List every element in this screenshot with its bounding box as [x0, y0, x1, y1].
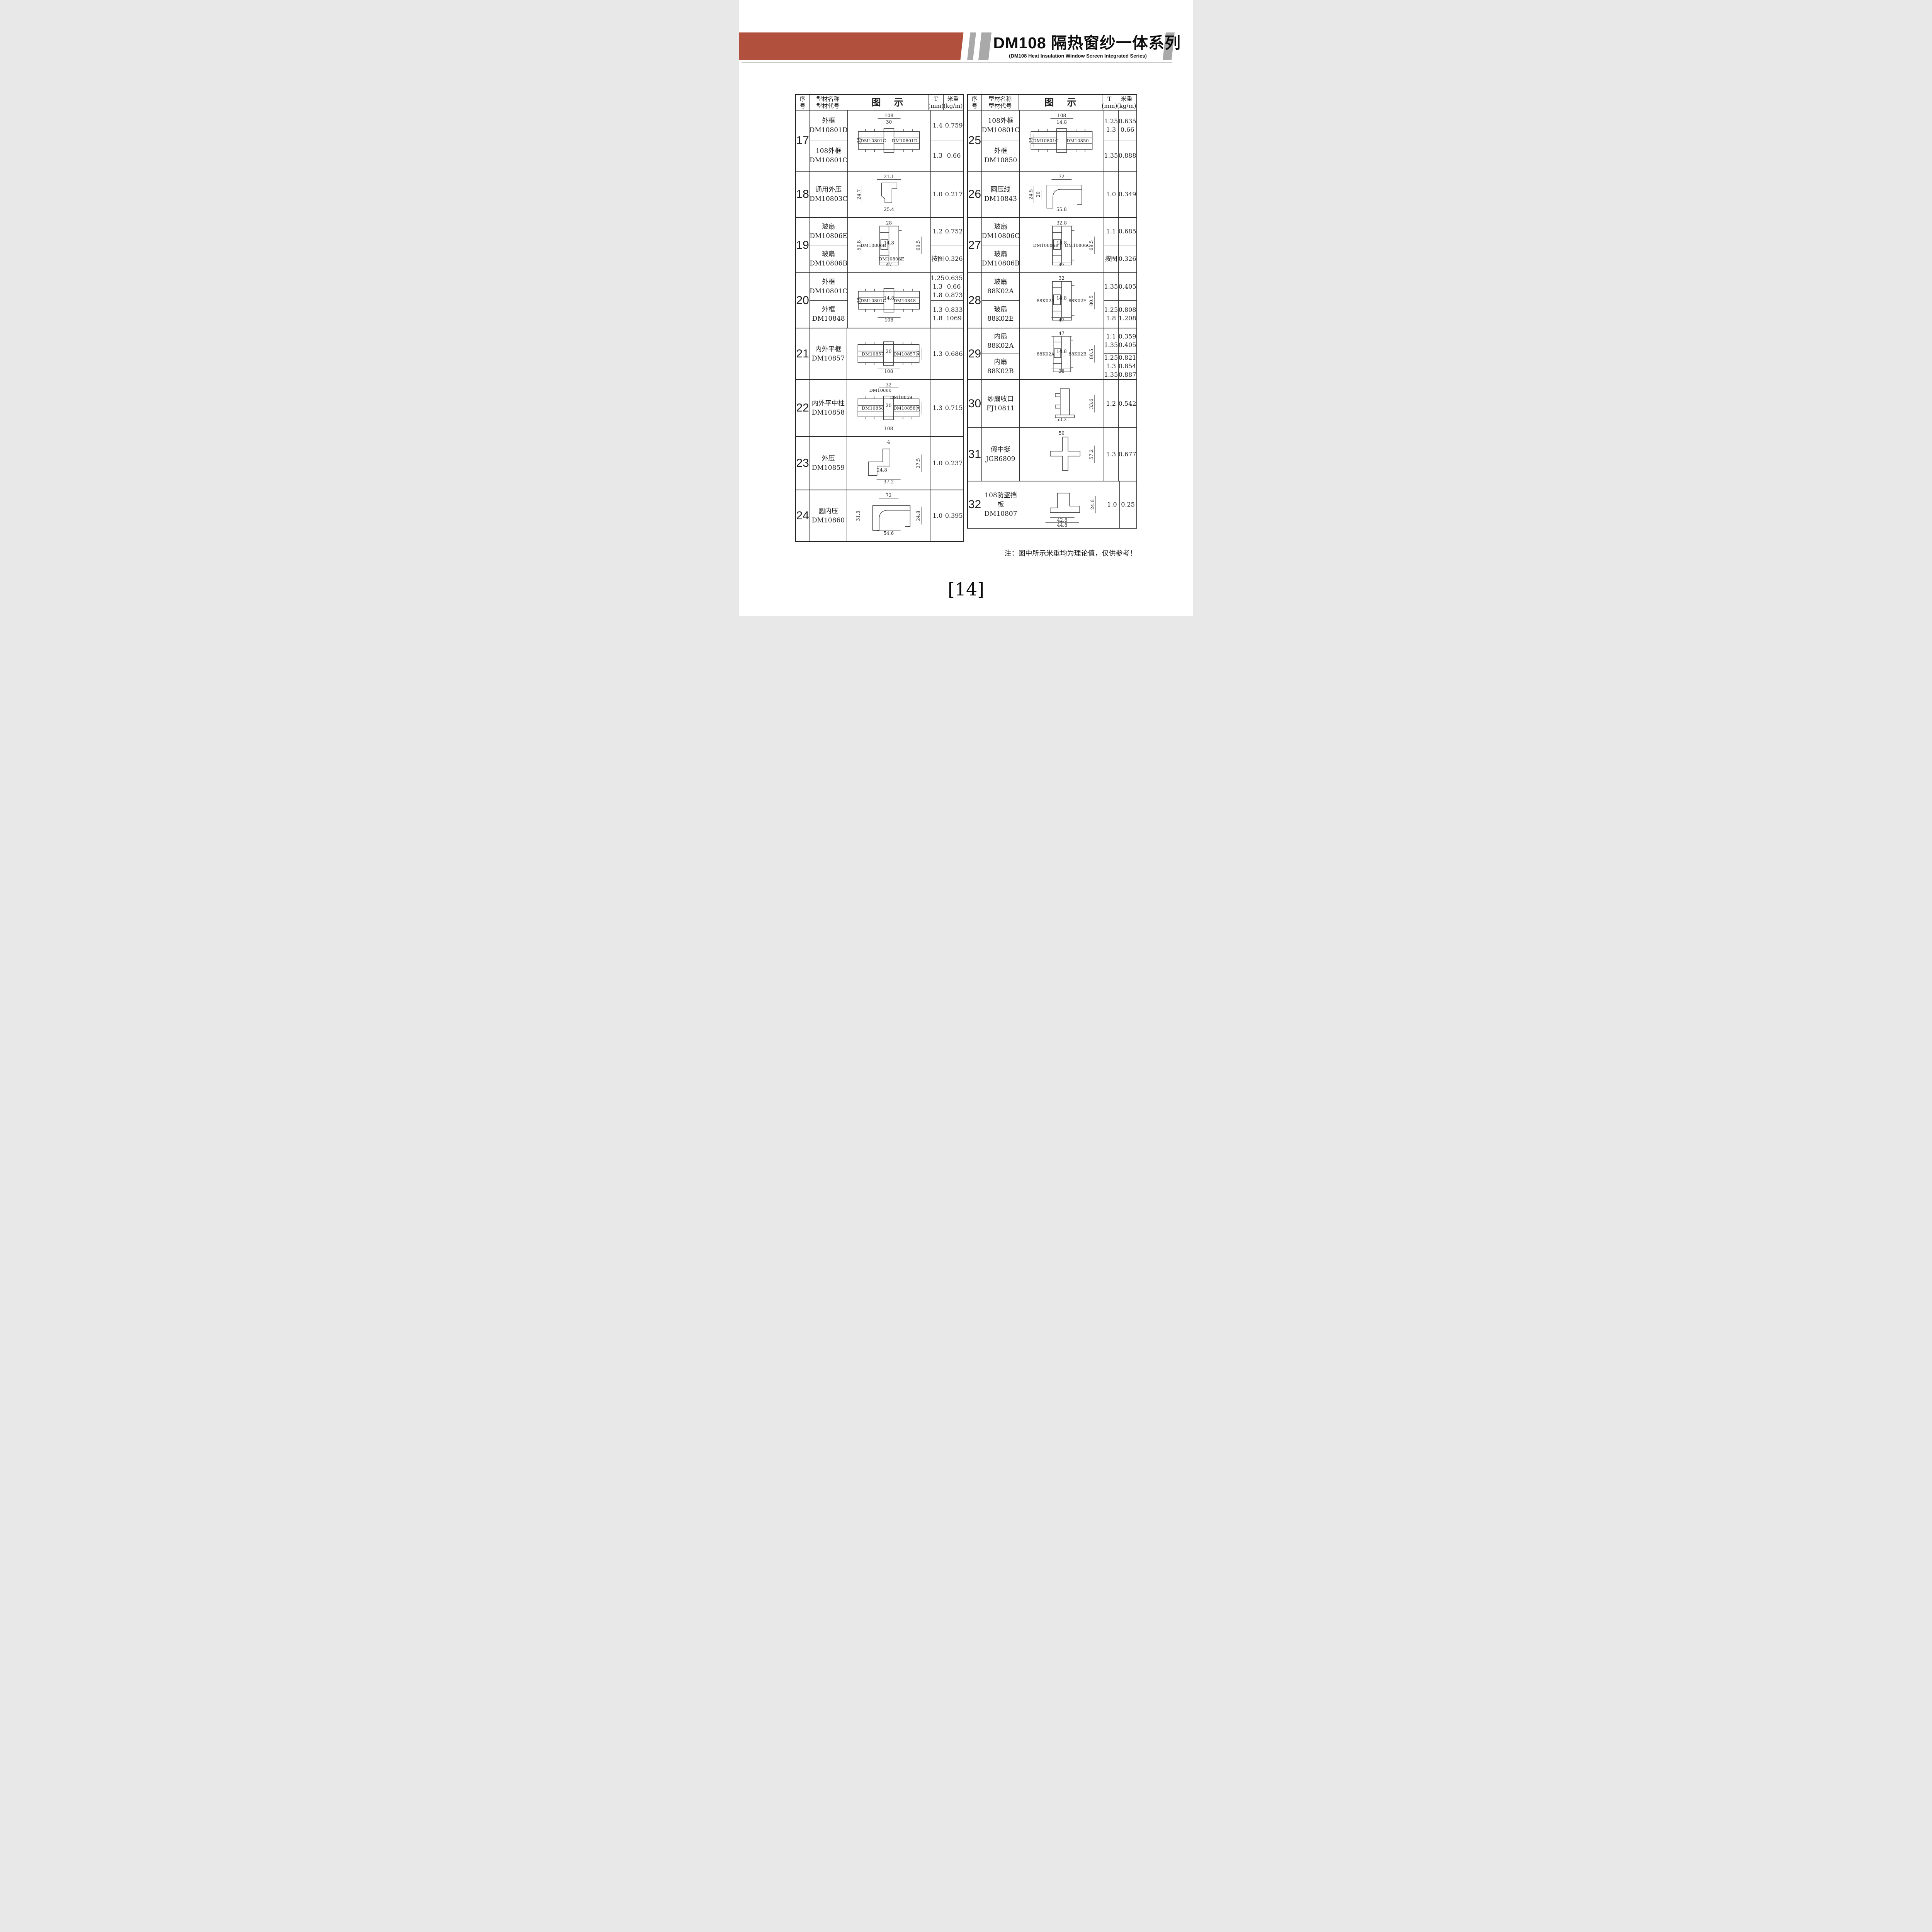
row-number: 21 [796, 347, 809, 361]
profile-name-cell-section: 外压DM10859 [810, 437, 847, 490]
profile-code-label: DM10860 [869, 388, 891, 393]
weight-cell-section: 0.326 [945, 245, 963, 272]
profile-name-cell-stack: 通用外压DM10803C [810, 172, 847, 217]
table-row: 32108防盗挡板DM1080724.642.844.81.00.25 [968, 481, 1136, 528]
dimension-label: 72 [1052, 174, 1071, 180]
row-number-cell: 23 [796, 437, 810, 490]
weight-cell-stack: 0.395 [945, 490, 963, 541]
table-header-row: 序 号 型材名称 型材代号 图示 T (mm) 米重 (kg/m) [968, 95, 1136, 111]
dimension-label: 14.8 [1056, 296, 1067, 301]
weight-value: 0.635 0.66 [1119, 117, 1136, 134]
profile-name-cell-section: 通用外压DM10803C [810, 172, 847, 217]
table-row: 27玻扇DM10806C玻扇DM10806B32.814.869.547DM10… [968, 218, 1136, 273]
thickness-cell: 1.0 [1104, 172, 1119, 217]
thickness-value: 1.0 [1107, 500, 1117, 509]
dimension-label: 24.5 [1029, 186, 1034, 203]
profile-code-label: DM10801D [892, 138, 918, 143]
profile-name-cell-section: 外框DM10850 [982, 141, 1019, 171]
dimension-label: 72 [879, 493, 898, 498]
dimension-label: 69.5 [916, 236, 922, 254]
profile-name-cell-stack: 圆内压DM10860 [810, 490, 847, 541]
dimension-label: 27.5 [916, 455, 921, 472]
row-number: 30 [968, 397, 981, 410]
weight-cell: 0.237 [945, 437, 963, 490]
table-row: 25108外框DM10801C外框DM1085010814.838DM10801… [968, 111, 1136, 172]
profile-name: 外压 [822, 454, 835, 463]
profile-code-label: 88K02E [1068, 298, 1086, 303]
profile-name-cell: 玻扇DM10806E玻扇DM10806B [810, 218, 848, 272]
row-number-cell: 18 [796, 172, 810, 217]
weight-cell: 0.677 [1119, 428, 1136, 481]
dimension-label: 32.8 [1049, 221, 1074, 226]
thickness-value: 1.2 [933, 227, 942, 236]
profile-name-cell-section: 玻扇DM10806B [810, 245, 847, 272]
row-number: 27 [968, 239, 981, 252]
weight-value: 0.25 [1121, 500, 1135, 509]
weight-cell: 0.542 [1119, 380, 1136, 427]
profile-diagram-cell: 3214.880.54788K02A88K02E [1020, 273, 1104, 328]
weight-cell-section: 0.635 0.66 [1119, 111, 1136, 141]
row-number: 17 [796, 134, 809, 147]
profile-name-cell-stack: 玻扇DM10806E玻扇DM10806B [810, 218, 847, 272]
thickness-cell-section: 1.0 [930, 490, 944, 541]
profile-code-label: DM10806C [1065, 243, 1090, 248]
thickness-cell-section: 1.25 1.3 [1104, 111, 1118, 141]
dimension-label: 108 [877, 426, 900, 431]
weight-cell-section: 0.635 0.66 0.873 [945, 273, 963, 300]
series-title: DM108 隔热窗纱一体系列 [993, 33, 1163, 53]
profile-diagram-cell: 322038108DM10860DM10859DM10858DM10858 [847, 380, 930, 436]
weight-value: 0.237 [945, 459, 963, 468]
profile-name: 108防盗挡板 [982, 491, 1020, 509]
profile-code: DM10859 [812, 463, 845, 473]
footer-note: 注：图中所示米重均为理论值，仅供参考！ [1005, 548, 1137, 558]
row-number-cell: 19 [796, 218, 810, 272]
thickness-cell: 1.0 [930, 490, 945, 541]
thickness-cell-section: 1.2 [1104, 380, 1118, 427]
dimension-label: 50 [1052, 431, 1071, 436]
profile-diagram-cell: 427.524.837.2 [847, 437, 930, 490]
row-number-cell: 27 [968, 218, 982, 272]
row-number-cell: 17 [796, 111, 810, 171]
column-header-diagram: 图示 [1019, 95, 1102, 110]
profile-code-label: DM10801C [861, 298, 886, 303]
weight-cell: 0.4050.808 1.208 [1119, 273, 1136, 328]
dimension-label: 47 [879, 262, 899, 267]
profile-name-cell: 外框DM10801C外框DM10848 [810, 273, 848, 328]
profile-name-cell-stack: 假中挺JGB6809 [982, 428, 1019, 481]
profile-name-cell: 玻扇88K02A玻扇88K02E [982, 273, 1019, 328]
thickness-cell-section: 1.0 [930, 437, 944, 490]
profile-code: DM10801C [982, 126, 1020, 135]
dimension-label: 55.8 [1049, 207, 1074, 212]
dimension-label: 32 [879, 383, 898, 388]
profile-code-label: DM10858 [862, 405, 884, 411]
profile-code-label: DM10859 [890, 395, 912, 400]
profile-name: 玻扇 [822, 222, 835, 231]
profile-code: 88K02E [987, 314, 1014, 323]
row-number-cell: 28 [968, 273, 982, 328]
weight-cell: 0.395 [945, 490, 963, 541]
thickness-value: 1.1 [1106, 227, 1116, 236]
weight-cell-stack: 0.542 [1119, 380, 1136, 427]
profile-code: DM10858 [812, 408, 845, 417]
dimension-label: 33.6 [1089, 395, 1095, 412]
profile-code-label: 88K02A [1037, 298, 1054, 303]
weight-value: 0.685 [1119, 227, 1136, 236]
thickness-cell-section: 1.3 [1104, 428, 1118, 481]
table-row: 20外框DM10801C外框DM108483814.8108DM10801CDM… [796, 273, 963, 328]
thickness-cell-section: 1.3 [931, 141, 945, 171]
weight-cell: 0.25 [1120, 481, 1136, 528]
profile-name-cell-stack: 108外框DM10801C外框DM10850 [982, 111, 1019, 171]
weight-cell-stack: 0.237 [945, 437, 963, 490]
profile-name-cell-section: 内扇88K02A [982, 328, 1019, 354]
dimension-label: 80.5 [1089, 292, 1095, 309]
row-number-cell: 32 [968, 481, 982, 528]
dimension-label: 20 [1036, 189, 1041, 199]
thickness-cell-stack: 1.2 [1104, 380, 1118, 427]
thickness-cell-stack: 1.25 1.3 1.81.3 1.8 [931, 273, 945, 328]
weight-cell-section: 0.752 [945, 218, 963, 245]
thickness-cell-stack: 1.3 [930, 328, 944, 379]
profile-code: DM10806E [810, 231, 847, 241]
profile-code: DM10807 [984, 509, 1017, 519]
weight-value: 0.686 [945, 350, 963, 358]
thickness-value: 1.0 [933, 190, 942, 199]
dimension-label: 37.2 [876, 479, 901, 485]
thickness-cell: 1.41.3 [931, 111, 945, 171]
weight-cell-stack: 0.4050.808 1.208 [1119, 273, 1136, 328]
profile-code-label: DM10806B [861, 243, 886, 248]
profile-table-left: 序 号 型材名称 型材代号 图示 T (mm) 米重 (kg/m) 17外框DM… [795, 94, 964, 542]
thickness-cell-section: 1.3 [930, 380, 944, 436]
profile-name-cell: 外框DM10801D108外框DM10801C [810, 111, 848, 171]
profile-name-cell-section: 外框DM10801C [810, 273, 847, 300]
profile-diagram-cell: 1083038DM10801CDM10801D [848, 111, 931, 171]
dimension-label: 54.6 [876, 531, 901, 536]
thickness-cell-stack: 1.0 [1104, 172, 1118, 217]
series-subtitle: (DM108 Heat Insulation Window Screen Int… [993, 53, 1163, 60]
thickness-cell-section: 1.0 [931, 172, 945, 217]
weight-cell-stack: 0.217 [945, 172, 963, 217]
row-number-cell: 24 [796, 490, 810, 541]
profile-diagram-cell: 33.653.2 [1020, 380, 1104, 427]
thickness-cell-section: 1.25 1.3 1.35 [1104, 353, 1118, 379]
weight-value: 0.759 [945, 121, 963, 130]
table-row: 26圆压线DM108437224.52055.81.00.349 [968, 172, 1136, 218]
profile-code: DM10801C [810, 287, 847, 296]
thickness-value: 1.25 1.8 [1104, 306, 1118, 323]
thickness-cell-section: 1.4 [931, 111, 945, 141]
weight-value: 0.66 [947, 151, 961, 160]
dimension-label: 24.7 [857, 186, 862, 203]
weight-cell: 0.715 [945, 380, 963, 436]
profile-code-label: DM10857 [893, 351, 916, 357]
profile-code: DM10801D [810, 126, 848, 135]
table-row: 30纱扇收口FJ1081133.653.21.20.542 [968, 380, 1136, 428]
thickness-cell-stack: 1.25 1.31.35 [1104, 111, 1118, 171]
dimension-label: 38 [916, 347, 921, 360]
thickness-value: 1.25 1.3 1.35 [1104, 354, 1118, 379]
profile-name: 内扇 [994, 332, 1007, 341]
profile-name-cell-section: 108外框DM10801C [982, 111, 1019, 141]
table-row: 31假中挺JGB68095057.21.30.677 [968, 428, 1136, 481]
profile-code-label: DM10848 [893, 298, 916, 303]
thickness-value: 按图 [932, 255, 944, 263]
profile-diagram-cell: 2038108DM10857DM10857 [847, 328, 930, 379]
profile-code: DM10806B [982, 259, 1020, 268]
thickness-cell: 1.25 1.31.35 [1104, 111, 1119, 171]
thickness-cell: 1.0 [1105, 481, 1120, 528]
profile-name-cell-section: 玻扇DM10806E [810, 218, 847, 245]
page-number: [14] [739, 579, 1193, 600]
weight-cell-section: 0.395 [945, 490, 963, 541]
table-header-row: 序 号 型材名称 型材代号 图示 T (mm) 米重 (kg/m) [796, 95, 963, 111]
thickness-cell: 1.1 1.351.25 1.3 1.35 [1104, 328, 1119, 379]
row-number-cell: 25 [968, 111, 982, 171]
profile-name-cell-section: 玻扇DM10806B [982, 245, 1019, 272]
profile-name: 内外平框 [815, 345, 842, 354]
profile-diagram-cell: 7231.324.854.6 [847, 490, 930, 541]
row-number-cell: 31 [968, 428, 982, 481]
profile-name-cell-section: 纱扇收口FJ10811 [982, 380, 1019, 427]
row-number-cell: 29 [968, 328, 982, 379]
profile-name-cell-section: 内扇88K02B [982, 354, 1019, 379]
profile-diagram-cell: 24.642.844.8 [1020, 481, 1105, 528]
profile-name: 外框 [822, 116, 835, 126]
dimension-label: 14.8 [1054, 120, 1069, 125]
profile-code: DM10806B [810, 259, 847, 268]
row-number: 25 [968, 134, 981, 147]
table-row: 17外框DM10801D108外框DM10801C1083038DM10801C… [796, 111, 963, 172]
row-number-cell: 26 [968, 172, 982, 217]
table-row: 28玻扇88K02A玻扇88K02E3214.880.54788K02A88K0… [968, 273, 1136, 328]
thickness-value: 1.3 [933, 350, 942, 358]
profile-code: DM10850 [984, 156, 1017, 165]
weight-cell-section: 0.833 1069 [945, 300, 963, 328]
row-number: 23 [796, 457, 809, 470]
profile-name-cell: 内外平框DM10857 [810, 328, 847, 379]
thickness-value: 1.25 1.3 1.8 [931, 274, 945, 299]
profile-name: 内外平中柱 [812, 399, 845, 408]
thickness-cell: 1.25 1.3 1.81.3 1.8 [931, 273, 945, 328]
profile-name-cell-stack: 108防盗挡板DM10807 [982, 481, 1020, 528]
thickness-cell-stack: 1.41.3 [931, 111, 945, 171]
weight-cell-section: 0.821 0.854 0.887 [1119, 353, 1136, 379]
profile-name-cell-section: 外框DM10801D [810, 111, 847, 141]
dimension-label: 53.2 [1049, 417, 1074, 422]
profile-name-cell-stack: 外压DM10859 [810, 437, 847, 490]
series-title-block: DM108 隔热窗纱一体系列 (DM108 Heat Insulation Wi… [993, 33, 1163, 60]
dimension-label: 47 [1052, 262, 1071, 267]
profile-name: 通用外压 [815, 185, 842, 194]
row-number: 29 [968, 347, 981, 361]
banner-stripe-1 [967, 32, 976, 60]
weight-value: 0.542 [1119, 400, 1136, 408]
profile-code: DM10857 [812, 354, 845, 363]
weight-cell: 0.359 0.4050.821 0.854 0.887 [1119, 328, 1136, 379]
dimension-label: 32 [1052, 276, 1071, 281]
thickness-cell-section: 1.3 1.8 [931, 300, 945, 328]
profile-name-cell-section: 圆压线DM10843 [982, 172, 1019, 217]
weight-cell: 0.635 0.660.888 [1119, 111, 1136, 171]
dimension-label: 24.6 [1090, 496, 1096, 514]
row-number: 28 [968, 294, 981, 307]
profile-name-cell-section: 假中挺JGB6809 [982, 428, 1019, 481]
column-header-name: 型材名称 型材代号 [810, 95, 846, 110]
table-row: 18通用外压DM10803C21.124.725.41.00.217 [796, 172, 963, 218]
table-row: 29内扇88K02A内扇88K02B4714.880.52888K02A88K0… [968, 328, 1136, 380]
profile-name-cell: 玻扇DM10806C玻扇DM10806B [982, 218, 1020, 272]
column-header-weight: 米重 (kg/m) [1117, 95, 1136, 110]
profile-name-cell: 纱扇收口FJ10811 [982, 380, 1019, 427]
table-row: 21内外平框DM108572038108DM10857DM108571.30.6… [796, 328, 963, 380]
thickness-cell-stack: 1.3 [1104, 428, 1118, 481]
dimension-label: 14.8 [1056, 349, 1067, 354]
dimension-label: 38 [916, 401, 921, 414]
dimension-label: 108 [878, 113, 900, 119]
row-number: 20 [796, 294, 809, 307]
profile-name-cell-section: 玻扇DM10806C [982, 218, 1019, 245]
weight-value: 0.405 [1119, 282, 1136, 291]
profile-name-cell-section: 内外平框DM10857 [810, 328, 847, 379]
thickness-cell-section: 1.2 [931, 218, 945, 245]
profile-code: JGB6809 [986, 454, 1015, 464]
weight-cell-stack: 0.7590.66 [945, 111, 963, 171]
weight-cell-section: 0.686 [945, 328, 963, 379]
profile-name-cell-stack: 外框DM10801D108外框DM10801C [810, 111, 847, 171]
profile-code-label: DM10850 [1066, 138, 1089, 143]
weight-cell: 0.635 0.66 0.8730.833 1069 [945, 273, 963, 328]
thickness-value: 1.3 [933, 151, 942, 160]
weight-value: 0.217 [945, 190, 963, 199]
thickness-cell-section: 按图 [1104, 245, 1118, 272]
column-header-weight: 米重 (kg/m) [944, 95, 963, 110]
profile-code: 88K02B [987, 367, 1014, 376]
thickness-cell: 1.0 [930, 437, 945, 490]
thickness-cell-section: 1.3 [930, 328, 944, 379]
weight-cell-section: 0.217 [945, 172, 963, 217]
weight-value: 0.359 0.405 [1119, 332, 1136, 349]
dimension-label: 20 [886, 403, 891, 408]
thickness-value: 1.0 [1106, 190, 1116, 199]
profile-diagram-cell: 5057.2 [1020, 428, 1104, 481]
banner-stripe-2 [978, 32, 992, 60]
dimension-label: 28 [879, 221, 899, 226]
thickness-cell-section: 1.0 [1105, 481, 1119, 528]
thickness-cell: 1.2按图 [931, 218, 945, 272]
weight-cell-stack: 0.715 [945, 380, 963, 436]
weight-cell-section: 0.25 [1120, 481, 1136, 528]
thickness-cell-stack: 1.3 [930, 380, 944, 436]
page-banner: DM108 隔热窗纱一体系列 (DM108 Heat Insulation Wi… [739, 32, 1193, 60]
dimension-label: 42.8 [1050, 517, 1075, 523]
thickness-value: 1.2 [1106, 400, 1116, 408]
row-number: 31 [968, 448, 981, 461]
column-header-thickness: T (mm) [1102, 95, 1117, 110]
weight-cell: 0.217 [945, 172, 963, 217]
profile-code: FJ10811 [986, 404, 1015, 413]
weight-value: 0.715 [945, 404, 963, 412]
weight-cell: 0.7520.326 [945, 218, 963, 272]
profile-name: 108外框 [988, 116, 1013, 126]
profile-name-cell-stack: 外框DM10801C外框DM10848 [810, 273, 847, 328]
weight-cell-section: 0.237 [945, 437, 963, 490]
profile-diagram-cell: 7224.52055.8 [1020, 172, 1104, 217]
column-header-diagram: 图示 [846, 95, 929, 110]
profile-code-label: 88K02A [1037, 351, 1054, 357]
weight-value: 0.677 [1119, 450, 1136, 459]
profile-name-cell-stack: 内扇88K02A内扇88K02B [982, 328, 1019, 379]
weight-cell-stack: 0.677 [1119, 428, 1136, 481]
profile-name: 假中挺 [991, 445, 1010, 454]
profile-name-cell-section: 外框DM10848 [810, 300, 847, 328]
weight-cell: 0.349 [1119, 172, 1136, 217]
thickness-cell: 1.0 [931, 172, 945, 217]
weight-cell-section: 0.405 [1119, 273, 1136, 300]
table-row: 22内外平中柱DM10858322038108DM10860DM10859DM1… [796, 380, 963, 437]
dimension-label: 44.8 [1046, 522, 1079, 528]
weight-cell-section: 0.359 0.405 [1119, 328, 1136, 353]
profile-name-cell: 内外平中柱DM10858 [810, 380, 847, 436]
weight-cell-section: 0.66 [945, 141, 963, 171]
profile-name: 纱扇收口 [987, 395, 1014, 404]
table-row: 19玻扇DM10806E玻扇DM10806B2850.814.869.547DM… [796, 218, 963, 273]
catalog-page: DM108 隔热窗纱一体系列 (DM108 Heat Insulation Wi… [739, 0, 1193, 616]
weight-cell: 0.686 [945, 328, 963, 379]
profile-name-cell-section: 玻扇88K02A [982, 273, 1019, 300]
profile-name: 玻扇 [994, 305, 1007, 314]
dimension-label: 21.1 [877, 174, 901, 180]
profile-code: 88K02A [987, 287, 1014, 296]
profile-name-cell-section: 108外框DM10801C [810, 141, 847, 171]
row-number: 24 [796, 509, 809, 522]
weight-cell-section: 0.349 [1119, 172, 1136, 217]
profile-name-cell: 通用外压DM10803C [810, 172, 848, 217]
weight-cell-section: 0.715 [945, 380, 963, 436]
row-number-cell: 22 [796, 380, 810, 436]
dimension-label: 24.8 [916, 507, 921, 524]
profile-code: DM10806C [982, 231, 1020, 241]
weight-cell-section: 0.759 [945, 111, 963, 141]
thickness-value: 按图 [1105, 255, 1117, 263]
profile-diagram-cell: 3814.8108DM10801CDM10848 [848, 273, 931, 328]
weight-value: 0.888 [1119, 151, 1136, 160]
thickness-value: 1.0 [933, 459, 942, 468]
profile-name: 玻扇 [994, 222, 1007, 231]
weight-cell-stack: 0.25 [1120, 481, 1136, 528]
profile-name-cell: 圆压线DM10843 [982, 172, 1019, 217]
dimension-label: 108 [877, 369, 900, 374]
table-row: 24圆内压DM108607231.324.854.61.00.395 [796, 490, 963, 541]
profile-code-label: DM10801C [861, 138, 886, 143]
weight-cell-section: 0.326 [1119, 245, 1136, 272]
profile-name-cell: 108外框DM10801C外框DM10850 [982, 111, 1020, 171]
thickness-value: 1.0 [933, 512, 942, 520]
weight-cell-stack: 0.635 0.660.888 [1119, 111, 1136, 171]
thickness-cell-section: 1.35 [1104, 273, 1118, 300]
dimension-label: 47 [1052, 317, 1071, 323]
profile-name-cell-stack: 纱扇收口FJ10811 [982, 380, 1019, 427]
thickness-value: 1.1 1.35 [1104, 332, 1118, 349]
profile-code: DM10860 [812, 516, 845, 525]
profile-code-label: DM10801C [1033, 138, 1058, 143]
profile-name: 外框 [822, 305, 835, 314]
thickness-cell-section: 按图 [931, 245, 945, 272]
row-number-cell: 30 [968, 380, 982, 427]
weight-value: 0.395 [945, 512, 963, 520]
